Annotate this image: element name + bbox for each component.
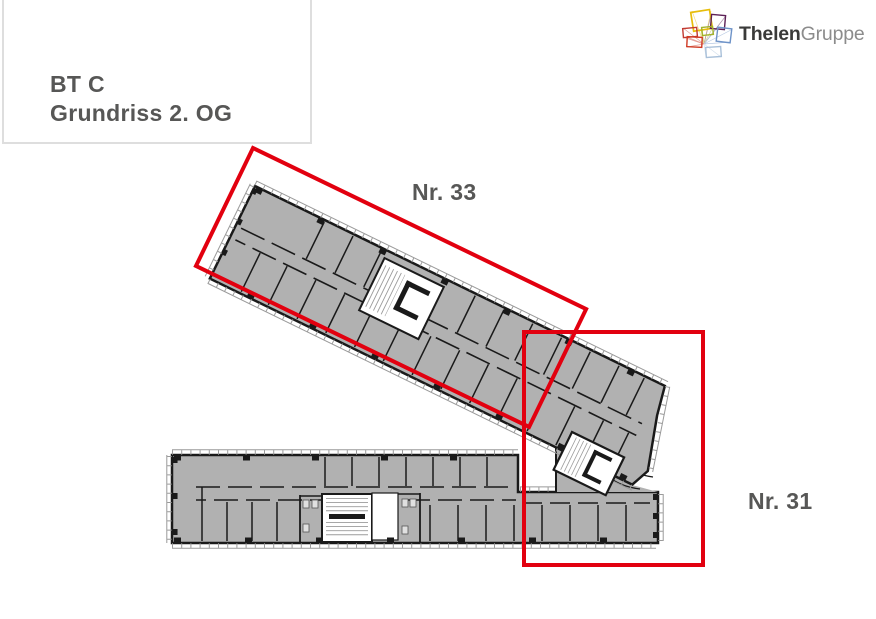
area-label-nr-33: Nr. 33 (412, 179, 476, 206)
page: BT C Grundriss 2. OG Nr. 33 Nr. 31 (0, 0, 876, 619)
area-label-nr-31: Nr. 31 (748, 488, 812, 515)
title-line-1: BT C (50, 70, 310, 99)
brand-name-light: Gruppe (801, 23, 865, 45)
wing-diagonal (203, 179, 691, 495)
thelen-logo-mark-icon (674, 5, 736, 63)
brand-name: ThelenGruppe (739, 23, 865, 46)
title-line-2: Grundriss 2. OG (50, 99, 310, 128)
project-title-box: BT C Grundriss 2. OG (2, 0, 312, 144)
thelen-gruppe-logo: ThelenGruppe (674, 5, 865, 63)
brand-name-bold: Thelen (739, 23, 801, 45)
